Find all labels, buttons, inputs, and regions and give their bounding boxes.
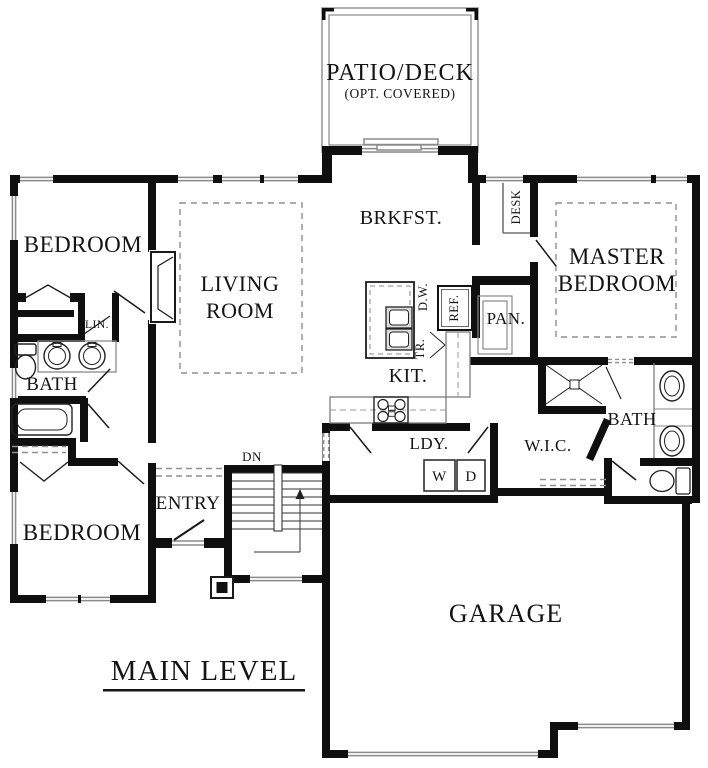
window <box>178 175 213 183</box>
patio-note-label: (OPT. COVERED) <box>345 86 456 101</box>
master-bedroom-label-line2: BEDROOM <box>558 271 677 296</box>
garage-label: GARAGE <box>449 599 563 628</box>
wall-segment <box>76 458 118 466</box>
wall-segment <box>692 175 700 503</box>
toilet-fixture <box>650 468 690 494</box>
wall-segment <box>498 488 612 496</box>
linen-label: LIN. <box>85 319 109 331</box>
bedroom-upper-label: BEDROOM <box>24 232 143 257</box>
window <box>222 175 260 183</box>
bedroom-lower-label: BEDROOM <box>23 520 142 545</box>
wall-segment <box>322 423 330 758</box>
wall-segment <box>224 465 232 583</box>
stair-stringer <box>274 465 282 531</box>
wall-segment <box>538 406 606 414</box>
wall-segment <box>640 458 692 466</box>
stairs-down-label: DN <box>242 449 262 464</box>
wall-segment <box>372 423 470 431</box>
laundry-door-east <box>468 427 488 453</box>
toilet-room-door <box>612 461 636 480</box>
window <box>577 175 651 183</box>
island-sink-fixture <box>386 307 412 350</box>
wall-segment <box>18 310 74 317</box>
patio-deck-label: PATIO/DECK <box>326 60 474 86</box>
wall-segment <box>472 183 480 245</box>
master-bedroom-label-line1: MASTER <box>569 244 665 269</box>
trash-label: TR. <box>413 339 427 360</box>
wall-segment <box>112 293 119 342</box>
dishwasher-label: D.W. <box>416 283 430 311</box>
kitchen-label: KIT. <box>389 365 428 387</box>
desk-label: DESK <box>509 190 523 225</box>
sink-fixture <box>44 343 70 370</box>
wall-segment <box>10 438 76 446</box>
garage-wall-opening-dashed <box>323 433 330 461</box>
closet-double-doors <box>20 285 76 301</box>
cased-opening-angle <box>430 332 445 358</box>
breakfast-label: BRKFST. <box>360 207 443 229</box>
wall-segment <box>530 183 538 237</box>
floor-plan-svg: PATIO/DECK (OPT. COVERED) BRKFST. DESK M… <box>0 0 708 768</box>
stair-hall-sill <box>250 575 302 583</box>
wall-segment <box>68 438 76 466</box>
wall-segment <box>472 276 480 338</box>
laundry-label: LDY. <box>410 434 449 453</box>
entry-opening-dashed <box>156 469 224 477</box>
laundry-door-west <box>350 427 371 453</box>
living-room-label-line2: ROOM <box>206 298 274 323</box>
wall-segment <box>10 396 86 404</box>
wall-segment <box>204 538 226 548</box>
sink-fixture <box>79 343 105 370</box>
wall-segment <box>148 320 156 443</box>
shower-fixture <box>546 365 602 404</box>
wall-segment <box>472 276 534 285</box>
front-door-leaf <box>174 520 204 540</box>
dryer-label: D <box>465 469 476 485</box>
wall-segment <box>148 538 172 548</box>
porch-column <box>211 577 233 598</box>
bathtub-fixture <box>12 404 72 435</box>
wic-shelf-dashed <box>540 480 610 486</box>
living-room-label-line1: LIVING <box>201 271 280 296</box>
kitchen-counter-south <box>330 397 446 423</box>
front-door-threshold <box>172 538 204 548</box>
stairs <box>232 465 322 552</box>
window <box>10 492 18 544</box>
window <box>46 595 78 603</box>
plan-title-underline <box>103 689 305 692</box>
fireplace <box>149 250 177 324</box>
floor-plan-page: PATIO/DECK (OPT. COVERED) BRKFST. DESK M… <box>0 0 708 768</box>
window <box>264 175 298 183</box>
plan-title: MAIN LEVEL <box>111 655 297 687</box>
wall-segment <box>682 500 690 730</box>
master-bedroom-ceiling-dashed <box>556 203 676 337</box>
wall-segment <box>322 423 350 431</box>
master-bath-label: BATH <box>607 409 656 429</box>
walk-in-closet-label: W.I.C. <box>524 436 571 455</box>
window <box>486 175 523 183</box>
patio-corner-tick <box>475 8 479 20</box>
window <box>656 175 687 183</box>
wall-segment <box>604 458 612 504</box>
window <box>81 595 110 603</box>
garage-door-small <box>578 722 674 730</box>
master-bedroom-door <box>536 240 556 266</box>
wall-segment <box>148 463 156 603</box>
wall-segment <box>322 495 498 503</box>
wall-segment <box>148 183 156 252</box>
kitchen-island <box>366 282 414 358</box>
shower-door <box>606 367 621 399</box>
wall-segment <box>80 398 88 442</box>
wall-segment <box>18 293 26 302</box>
tub-room-door <box>88 404 109 428</box>
sink-fixture <box>660 426 684 456</box>
pantry-label: PAN. <box>487 309 526 328</box>
sink-fixture <box>660 371 684 401</box>
wall-segment <box>612 496 692 504</box>
entry-label: ENTRY <box>156 493 221 514</box>
hall-bath-label: BATH <box>26 374 78 395</box>
wall-segment <box>466 357 540 365</box>
garage-door-large <box>348 750 538 758</box>
bedroom-lower-door <box>118 461 144 484</box>
patio-corner-tick <box>322 8 326 20</box>
closet-double-doors <box>20 462 68 481</box>
window <box>10 196 18 240</box>
refrigerator-label: REF. <box>447 294 461 321</box>
wall-segment <box>530 262 538 365</box>
hall-closet-shelf-dashed <box>12 447 66 453</box>
washer-label: W <box>432 469 447 485</box>
wall-segment <box>490 423 498 503</box>
master-bath-opening-dashed <box>608 357 634 365</box>
window <box>20 175 53 183</box>
